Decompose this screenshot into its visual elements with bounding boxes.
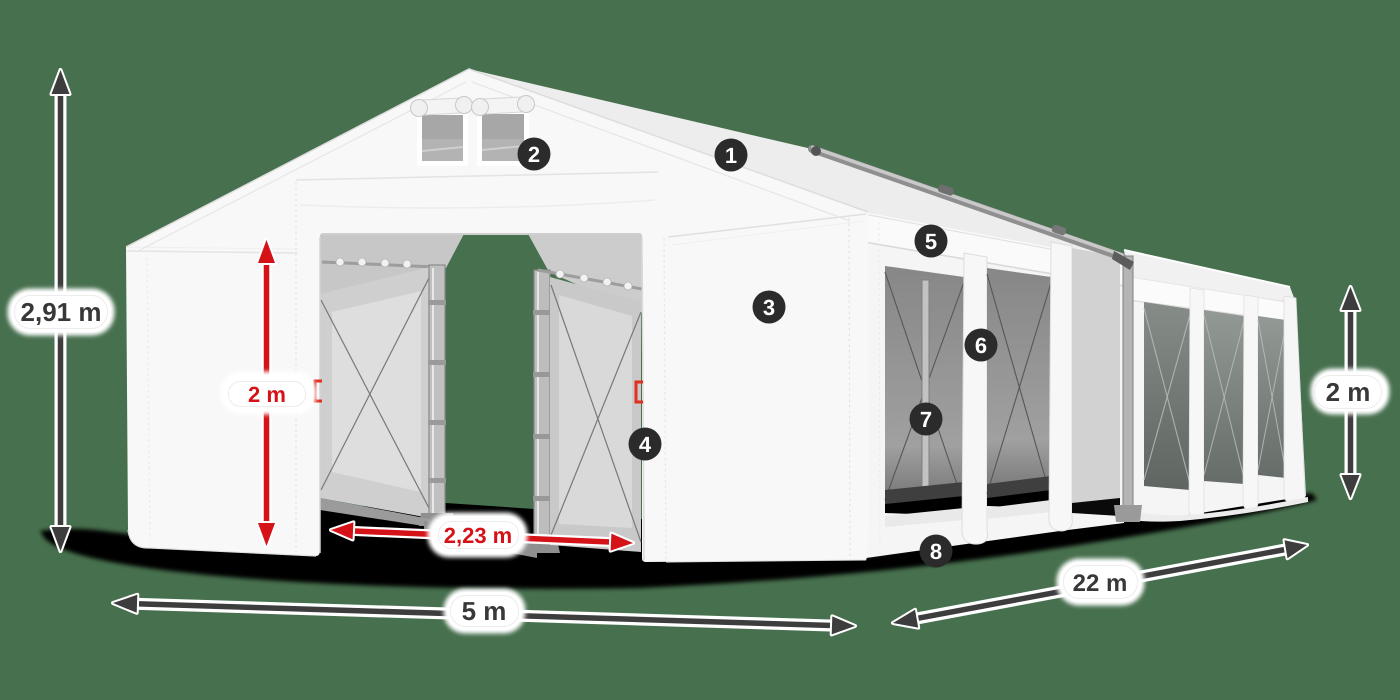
svg-text:2 m: 2 m [248, 382, 286, 407]
svg-text:4: 4 [639, 432, 652, 457]
svg-text:2,23 m: 2,23 m [444, 523, 513, 548]
svg-text:2: 2 [528, 142, 540, 167]
svg-text:8: 8 [930, 539, 942, 564]
svg-text:5 m: 5 m [462, 596, 507, 626]
svg-text:2,91 m: 2,91 m [21, 297, 102, 327]
svg-text:7: 7 [920, 407, 932, 432]
svg-text:5: 5 [925, 229, 937, 254]
svg-text:1: 1 [725, 143, 737, 168]
svg-text:2 m: 2 m [1326, 377, 1371, 407]
svg-text:6: 6 [975, 333, 987, 358]
svg-text:22 m: 22 m [1073, 570, 1128, 597]
svg-text:3: 3 [763, 295, 775, 320]
